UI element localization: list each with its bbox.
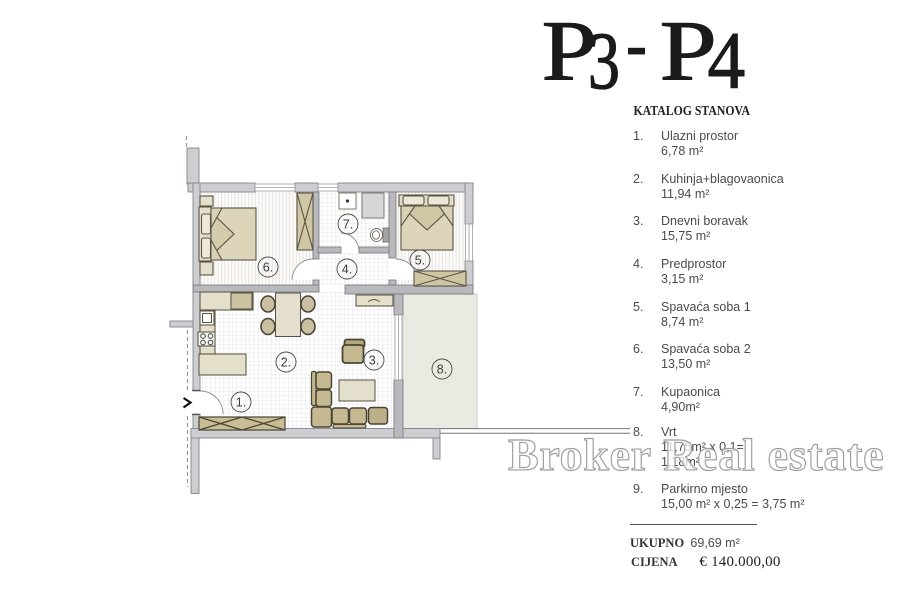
svg-text:KATALOG STANOVA: KATALOG STANOVA xyxy=(634,103,751,118)
svg-text:5.: 5. xyxy=(415,254,425,268)
svg-text:4: 4 xyxy=(708,16,746,107)
svg-text:3: 3 xyxy=(588,14,620,105)
svg-text:6.: 6. xyxy=(263,261,273,275)
svg-text:7.: 7. xyxy=(343,218,353,232)
svg-text:8.: 8. xyxy=(437,363,447,377)
svg-text:2.: 2. xyxy=(281,356,291,370)
svg-text:4.: 4. xyxy=(342,263,352,277)
svg-text:1.: 1. xyxy=(236,396,246,410)
svg-text:3.: 3. xyxy=(369,354,379,368)
